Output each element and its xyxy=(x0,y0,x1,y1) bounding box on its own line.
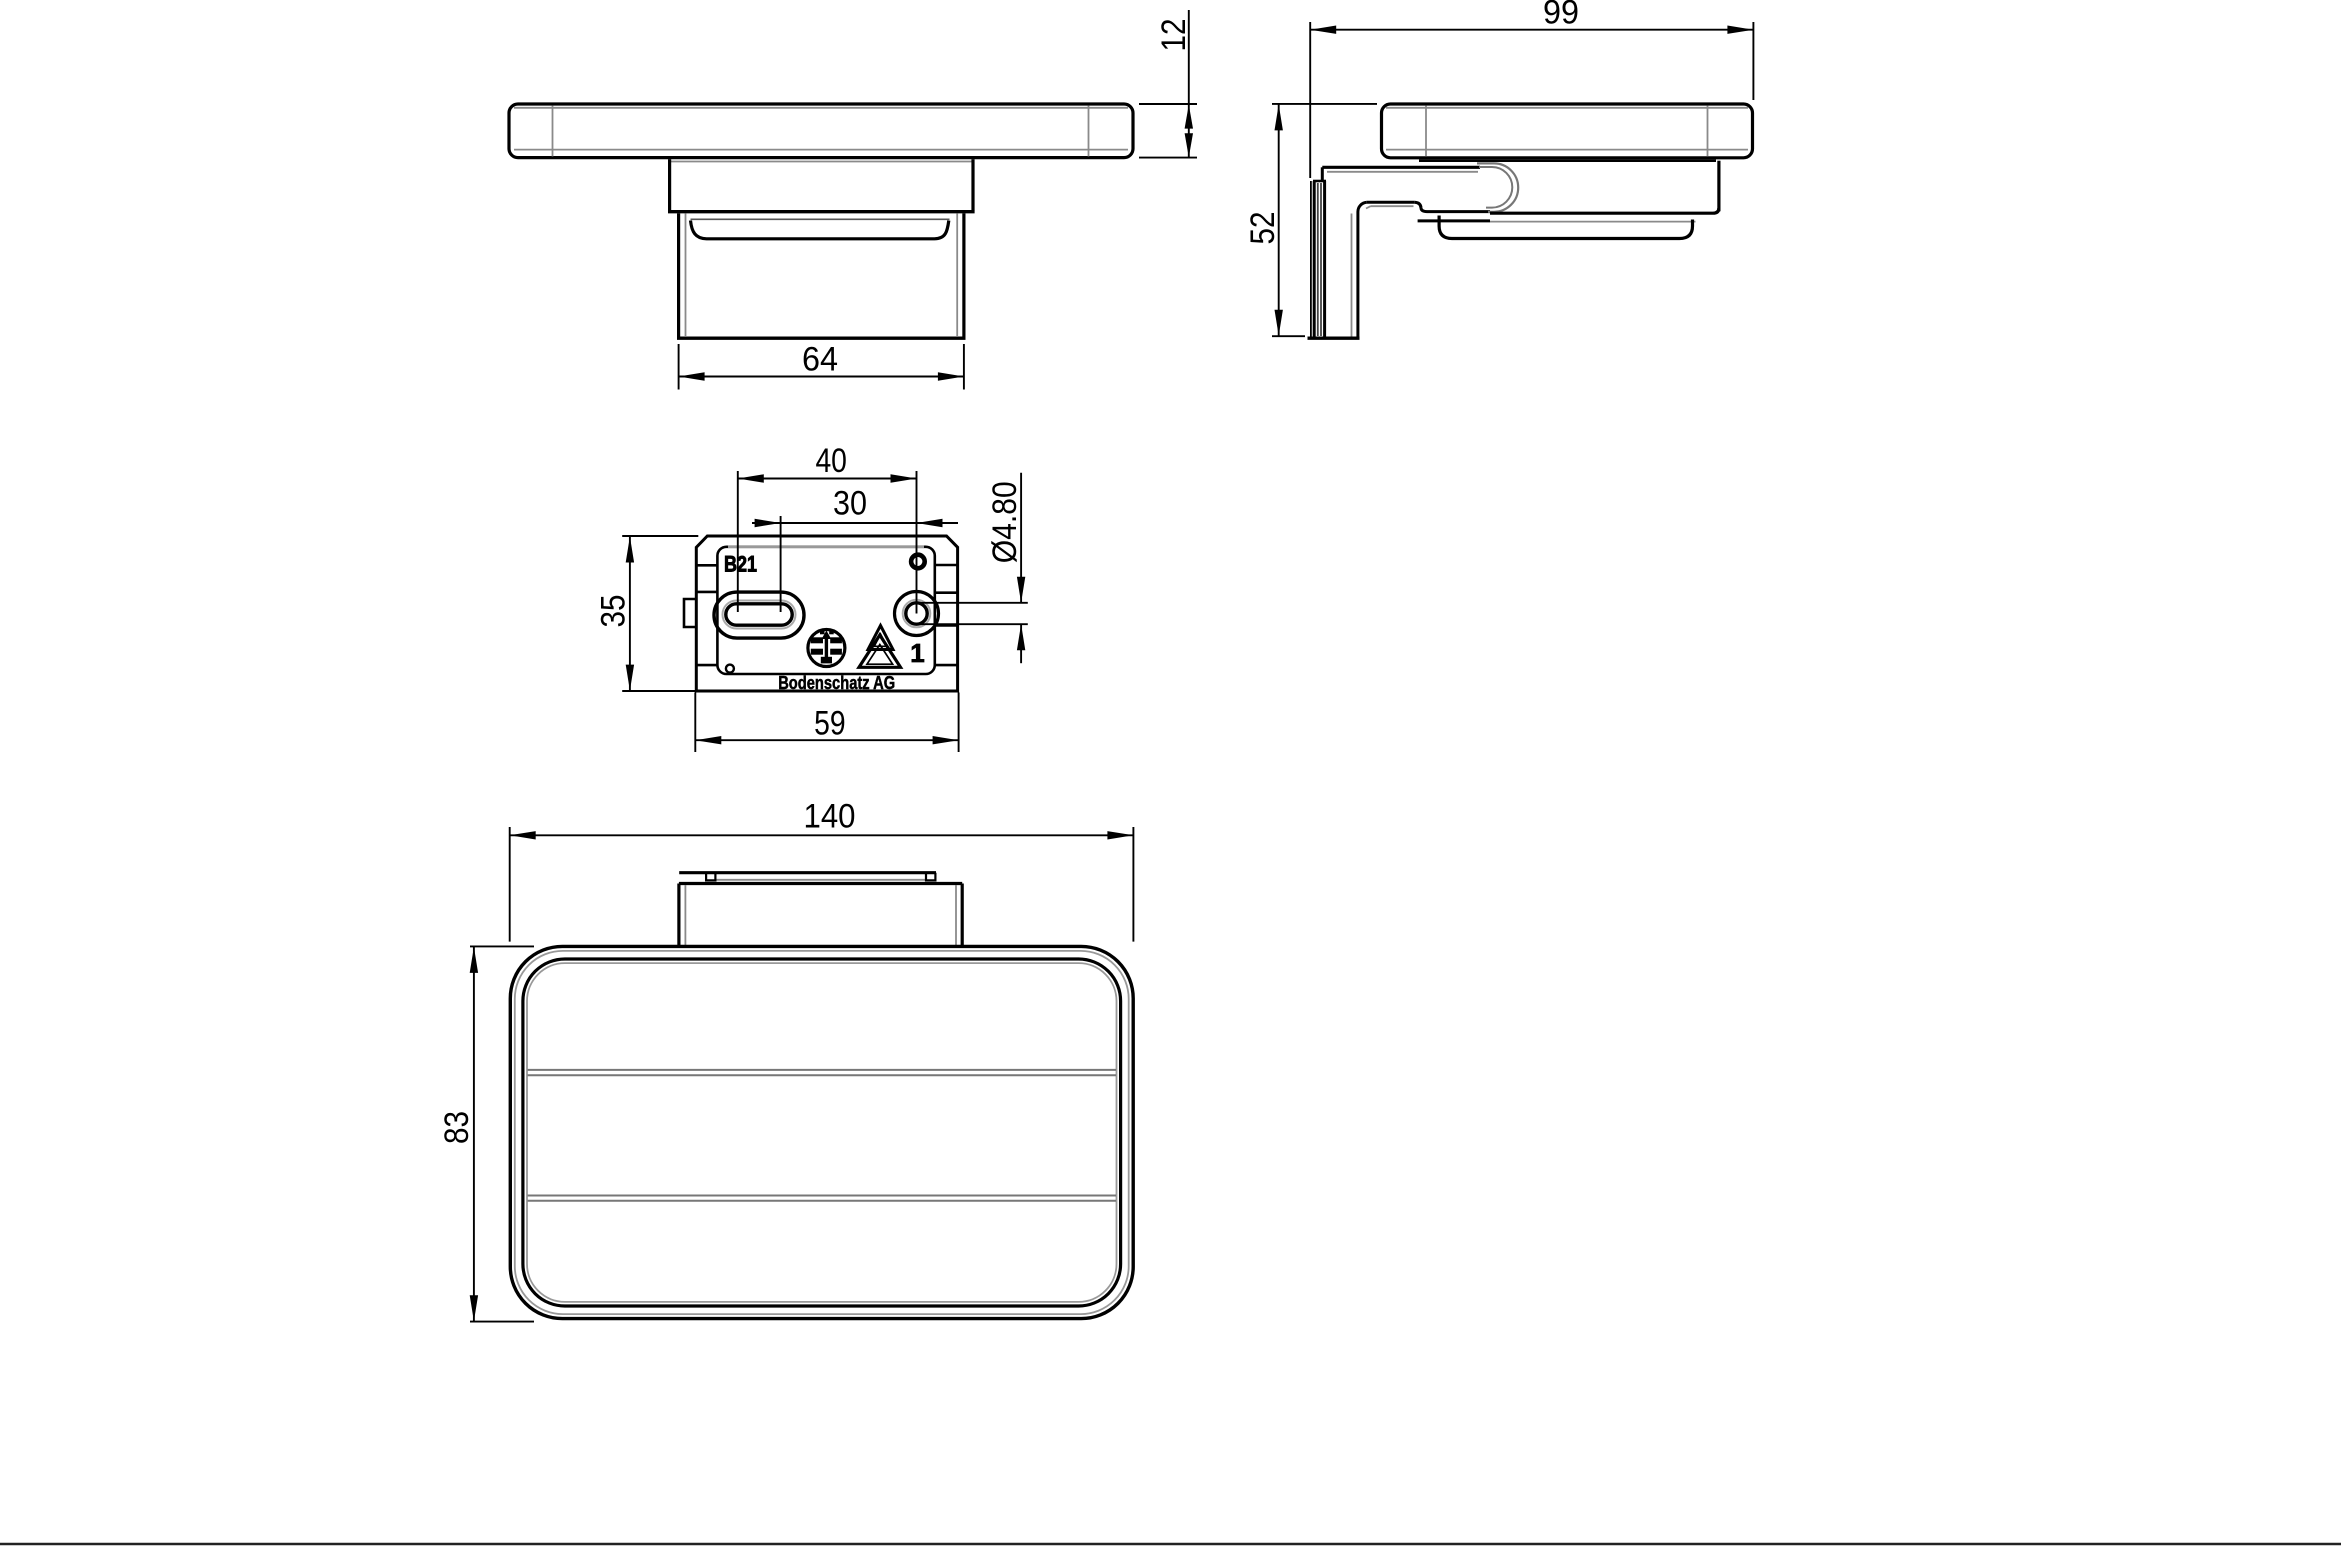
svg-text:140: 140 xyxy=(804,798,856,836)
svg-text:40: 40 xyxy=(815,442,847,480)
svg-text:35: 35 xyxy=(594,595,632,628)
svg-text:30: 30 xyxy=(833,484,867,522)
svg-text:59: 59 xyxy=(814,704,846,742)
svg-text:83: 83 xyxy=(438,1111,476,1144)
svg-text:12: 12 xyxy=(1155,19,1193,52)
svg-text:Ø4.80: Ø4.80 xyxy=(986,481,1024,563)
svg-text:B21: B21 xyxy=(724,552,757,577)
svg-text:99: 99 xyxy=(1543,0,1579,32)
svg-text:Bodenschatz AG: Bodenschatz AG xyxy=(778,673,895,693)
svg-text:1: 1 xyxy=(910,638,924,668)
svg-text:52: 52 xyxy=(1244,212,1282,245)
svg-text:64: 64 xyxy=(802,341,838,379)
